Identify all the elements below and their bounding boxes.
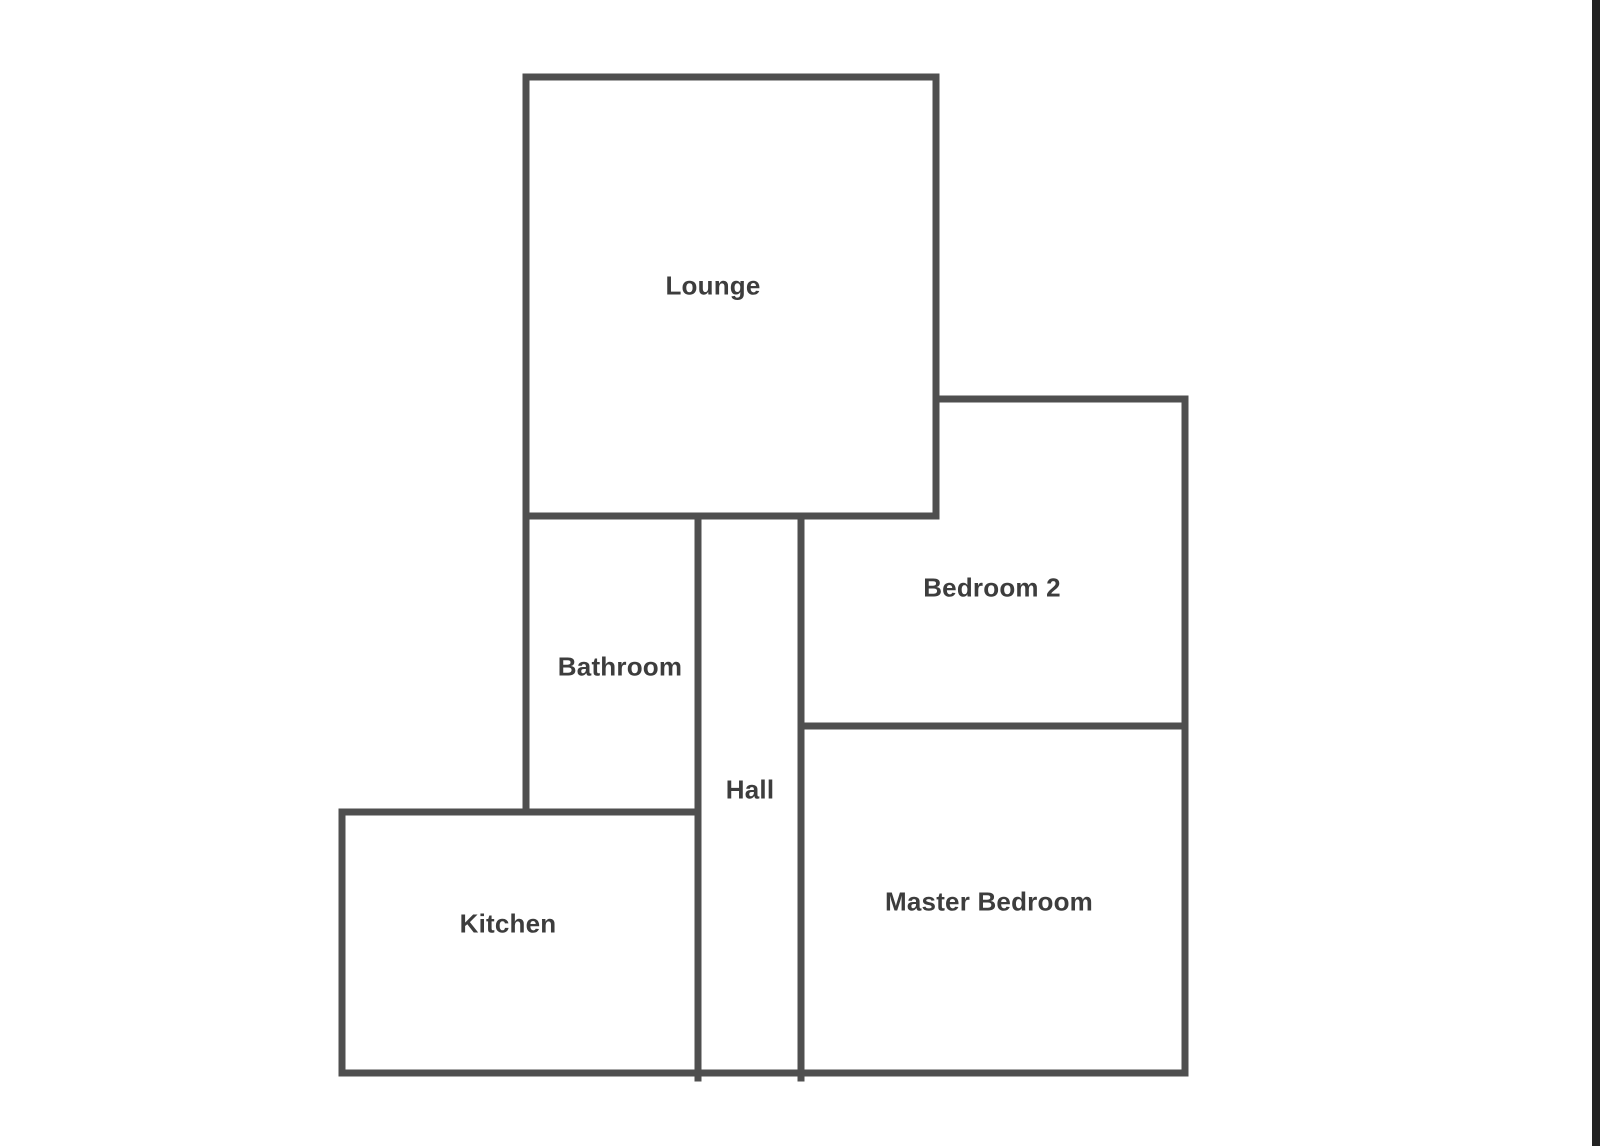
room-label-hall: Hall bbox=[726, 775, 774, 806]
floorplan-drawing bbox=[0, 0, 1600, 1146]
room-label-bedroom2: Bedroom 2 bbox=[923, 573, 1061, 604]
room-label-lounge: Lounge bbox=[665, 271, 760, 302]
room-label-bathroom: Bathroom bbox=[558, 652, 682, 683]
screen-right-edge-bar bbox=[1592, 0, 1600, 1146]
room-label-master-bedroom: Master Bedroom bbox=[885, 887, 1093, 918]
room-label-kitchen: Kitchen bbox=[460, 909, 557, 940]
floorplan-canvas: Lounge Bathroom Hall Kitchen Bedroom 2 M… bbox=[0, 0, 1600, 1146]
